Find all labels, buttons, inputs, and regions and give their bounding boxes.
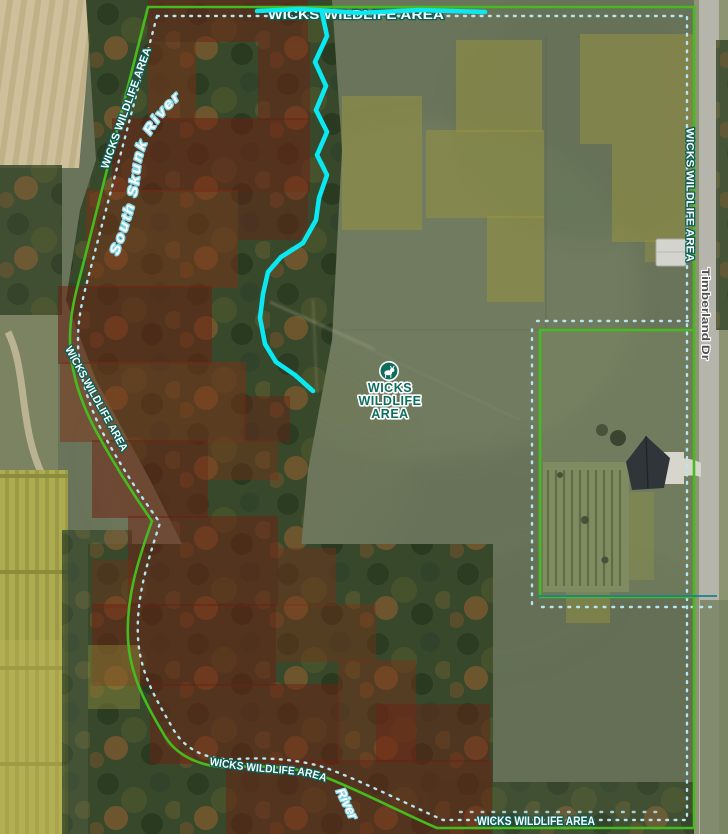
roadside-grass — [700, 600, 728, 834]
roadside-trees — [716, 40, 728, 330]
map-canvas[interactable]: WICKS WILDLIFE AREA WICKS WILDLIFE AREA … — [0, 0, 728, 834]
inholding-parcel — [540, 330, 701, 598]
crop-field-bright — [0, 640, 65, 834]
outbuilding — [656, 239, 686, 266]
area-label-bottom-right: WICKS WILDLIFE AREA — [477, 816, 595, 828]
area-label-center-1: WICKS — [368, 381, 412, 395]
area-label-center-3: AREA — [371, 407, 408, 421]
area-label-center-2: WILDLIFE — [358, 394, 421, 408]
yard-tree — [596, 424, 608, 436]
aerial-basemap: WICKS WILDLIFE AREA WICKS WILDLIFE AREA … — [0, 0, 728, 834]
area-label-right-edge: WICKS WILDLIFE AREA — [684, 128, 696, 262]
farm-field-tan — [0, 0, 92, 168]
road-label-timberland: Timberland Dr — [699, 268, 711, 361]
yard-tree — [610, 430, 626, 446]
